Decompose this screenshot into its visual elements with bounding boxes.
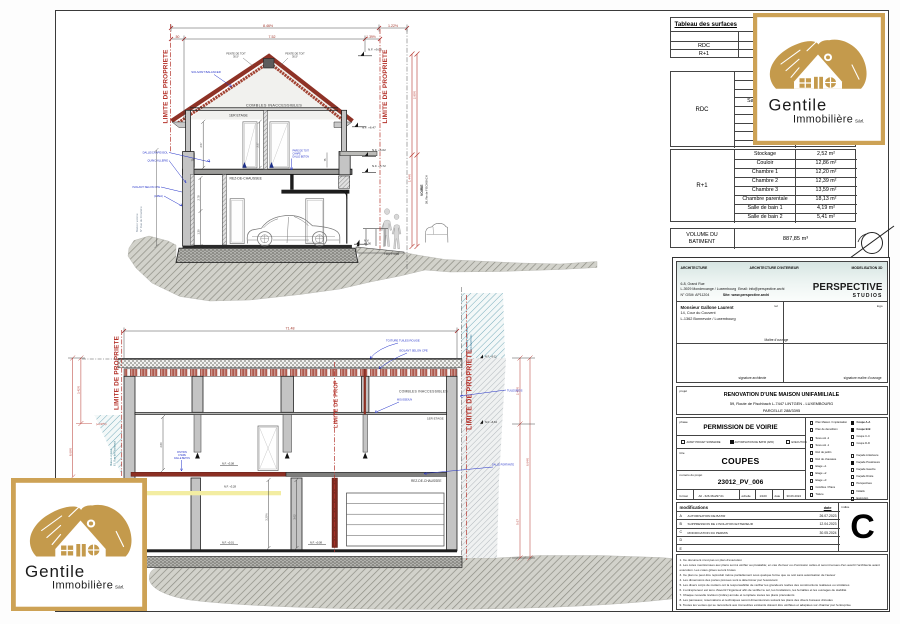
svg-text:Gentile: Gentile xyxy=(769,97,828,115)
svg-text:N.F. +3.08: N.F. +3.08 xyxy=(222,462,234,466)
svg-text:2.60: 2.60 xyxy=(159,442,163,448)
svg-text:N.F. +6.02: N.F. +6.02 xyxy=(372,148,386,152)
svg-text:6.64½: 6.64½ xyxy=(526,457,530,466)
svg-text:TOITURE TUILES ROUGE: TOITURE TUILES ROUGE xyxy=(386,339,420,343)
svg-text:Immobilière: Immobilière xyxy=(52,579,113,591)
svg-text:1.39½: 1.39½ xyxy=(366,35,376,39)
svg-text:2.57: 2.57 xyxy=(199,142,203,148)
svg-text:TROTTOIR: TROTTOIR xyxy=(384,252,400,256)
svg-text:30.5°: 30.5° xyxy=(233,54,239,58)
svg-text:2.57: 2.57 xyxy=(255,142,259,148)
svg-text:61, Rue de Fischbach: 61, Rue de Fischbach xyxy=(113,440,117,466)
svg-text:DALLE PORTANTE: DALLE PORTANTE xyxy=(492,464,514,467)
svg-text:7.52: 7.52 xyxy=(269,35,276,39)
svg-text:SOLIVANT BALANCER: SOLIVANT BALANCER xyxy=(191,70,220,74)
svg-text:3.20½: 3.20½ xyxy=(264,513,268,521)
svg-text:30.5°: 30.5° xyxy=(292,54,298,58)
svg-text:N° Rue du Cimetière: N° Rue du Cimetière xyxy=(139,206,143,232)
svg-text:Maison voisine: Maison voisine xyxy=(109,448,113,466)
svg-text:LIMITE DE PROPRIETE: LIMITE DE PROPRIETE xyxy=(382,49,389,124)
svg-text:1.30: 1.30 xyxy=(196,229,200,235)
svg-text:TUILES/BOIS: TUILES/BOIS xyxy=(507,390,523,393)
svg-text:N.F. +0.01: N.F. +0.01 xyxy=(222,541,234,545)
svg-text:LIMITE DE PROP: LIMITE DE PROP xyxy=(334,380,340,428)
svg-text:1.22½: 1.22½ xyxy=(388,24,398,28)
svg-text:N.F. +6.47: N.F. +6.47 xyxy=(362,126,376,130)
svg-text:VOIRIE: VOIRIE xyxy=(420,184,424,196)
svg-text:±0.00: ±0.00 xyxy=(364,242,371,246)
svg-text:2.90½: 2.90½ xyxy=(413,90,417,99)
svg-text:LIMITE DE PROPRIETE: LIMITE DE PROPRIETE xyxy=(467,349,474,430)
svg-text:N.F. +5.72: N.F. +5.72 xyxy=(372,164,386,168)
svg-text:1ER ETAGE: 1ER ETAGE xyxy=(229,114,249,118)
svg-text:QUINCAILLERIE: QUINCAILLERIE xyxy=(148,159,169,163)
svg-text:CHAPE: CHAPE xyxy=(178,454,186,457)
svg-text:71.48: 71.48 xyxy=(286,327,295,331)
svg-text:LIMITE DE PROPRIETE: LIMITE DE PROPRIETE xyxy=(113,335,120,410)
svg-text:REZ-DE-CHAUSSEE: REZ-DE-CHAUSSEE xyxy=(411,479,441,483)
svg-text:.50: .50 xyxy=(175,35,180,39)
svg-text:59, Rte de FISCHBACH: 59, Rte de FISCHBACH xyxy=(425,175,429,204)
svg-text:(APEA): (APEA) xyxy=(154,194,163,198)
svg-text:1ER ETAGE: 1ER ETAGE xyxy=(427,417,444,421)
svg-text:(+2.97½): (+2.97½) xyxy=(96,422,107,426)
svg-text:ISOLANT SELON CPE: ISOLANT SELON CPE xyxy=(132,185,160,189)
svg-text:N.F. +6.64: N.F. +6.64 xyxy=(485,420,497,424)
svg-text:Immobilière: Immobilière xyxy=(793,114,853,126)
svg-text:N.F. +0.08: N.F. +0.08 xyxy=(310,541,322,545)
svg-text:2.78: 2.78 xyxy=(196,195,200,201)
svg-text:Sàrl.: Sàrl. xyxy=(855,119,864,124)
svg-text:Gentile: Gentile xyxy=(25,562,85,581)
svg-text:Sàrl.: Sàrl. xyxy=(115,584,124,589)
svg-text:COMBLES INACCESSIBLES: COMBLES INACCESSIBLES xyxy=(399,390,448,394)
svg-text:DALLE BETON: DALLE BETON xyxy=(293,156,310,159)
svg-text:3.02: 3.02 xyxy=(292,514,296,520)
svg-text:FINITION: FINITION xyxy=(177,452,187,454)
svg-text:N.F. +9.11: N.F. +9.11 xyxy=(485,355,497,359)
svg-text:75: 75 xyxy=(324,158,327,161)
svg-text:5.67: 5.67 xyxy=(516,519,520,525)
svg-text:8.69½: 8.69½ xyxy=(69,447,73,456)
svg-text:3.42½: 3.42½ xyxy=(77,385,81,394)
svg-text:COMBLES INACCESSIBLES: COMBLES INACCESSIBLES xyxy=(246,103,302,107)
svg-text:8.46½: 8.46½ xyxy=(263,24,273,28)
svg-text:MOUSSE/UN: MOUSSE/UN xyxy=(397,399,412,402)
svg-text:LIMITE DE PROPRIETE: LIMITE DE PROPRIETE xyxy=(162,49,169,124)
svg-text:REZ-DE-CHAUSSEE: REZ-DE-CHAUSSEE xyxy=(230,177,263,181)
svg-text:N.F. +3.28: N.F. +3.28 xyxy=(224,485,236,489)
svg-text:DALLE BETON: DALLE BETON xyxy=(174,457,190,460)
svg-text:ISOLANT SELON CPE: ISOLANT SELON CPE xyxy=(399,349,428,353)
svg-text:1.44½: 1.44½ xyxy=(408,173,412,182)
